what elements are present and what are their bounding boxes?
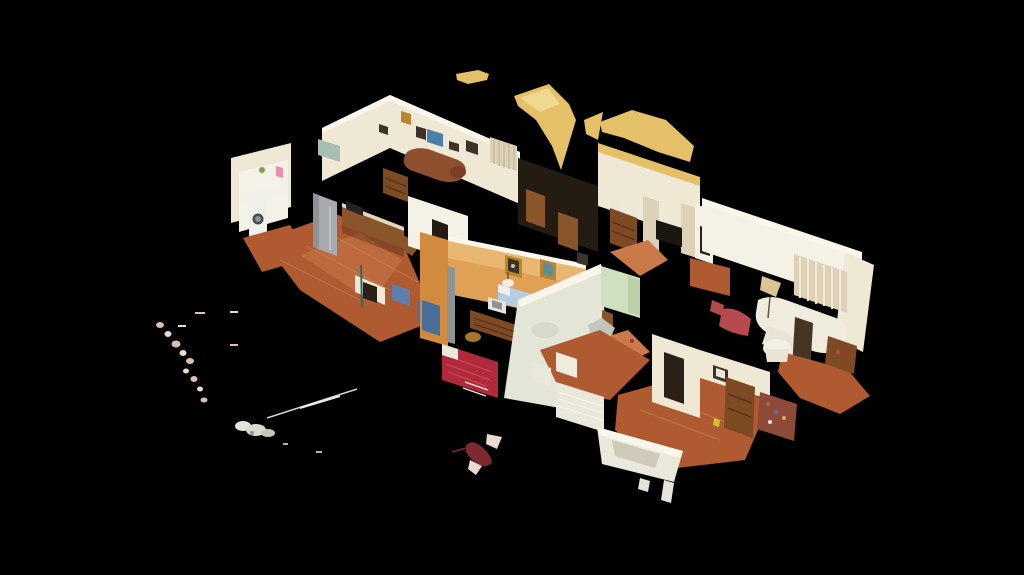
fridge-side	[313, 193, 319, 249]
blob-8	[197, 387, 203, 392]
blob-3	[172, 341, 181, 348]
viewer-canvas[interactable]	[0, 0, 1024, 575]
clutter-dot-1	[766, 402, 770, 406]
bottom-room-doorway	[664, 352, 684, 404]
blob-9	[201, 398, 208, 403]
blob-1	[156, 322, 164, 328]
clutter-dot-4	[768, 420, 772, 424]
red-dot-item	[630, 339, 634, 343]
artifact-teal-line	[361, 265, 362, 307]
dot-2	[316, 451, 322, 453]
blob-2	[165, 331, 172, 337]
dash-2	[195, 312, 205, 314]
blob-7	[191, 376, 198, 382]
blob-5	[186, 358, 194, 364]
blue-posters	[422, 300, 440, 336]
curtain-right	[681, 203, 697, 258]
dash-3	[230, 311, 238, 313]
streak-blob-blue	[250, 431, 254, 435]
dash-1	[178, 325, 186, 327]
streak-blob-3	[261, 429, 275, 437]
mint-wall-side	[628, 276, 640, 316]
blob-6	[183, 369, 189, 374]
sideboard-red-item-1	[836, 350, 840, 354]
leather-sofa-armrest	[450, 166, 466, 178]
laundry-plant	[259, 167, 265, 173]
blob-4	[180, 350, 187, 356]
dot-1	[283, 443, 288, 445]
tall-wood-cabinet	[724, 377, 755, 438]
dollhouse-viewer[interactable]	[0, 0, 1024, 575]
brass-bowl	[465, 332, 481, 342]
laundry-pink-towel	[276, 166, 283, 178]
grey-pole	[447, 266, 455, 344]
round-table-skirt	[765, 349, 789, 362]
clutter-dot-3	[782, 416, 786, 420]
washing-machine-door-glass	[255, 216, 261, 222]
sideboard-red-item-2	[843, 354, 847, 358]
dash-4	[230, 344, 238, 346]
portrait-face	[511, 264, 515, 268]
clutter-dot-2	[774, 410, 778, 414]
divider-mottle-1	[531, 322, 559, 338]
